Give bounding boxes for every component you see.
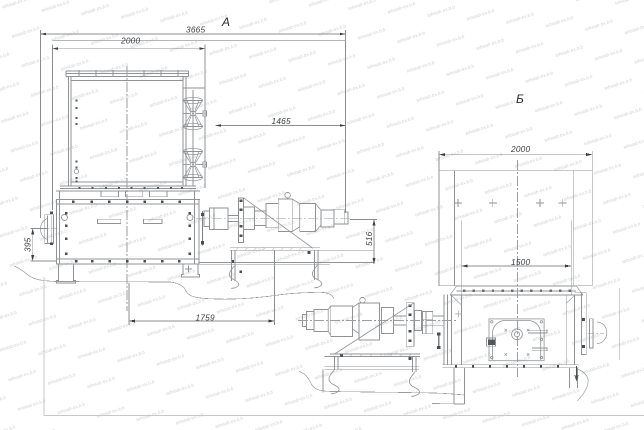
svg-text:3665: 3665: [186, 25, 205, 35]
svg-text:2000: 2000: [510, 144, 530, 154]
svg-text:1465: 1465: [272, 116, 291, 126]
svg-text:А: А: [221, 15, 230, 29]
svg-text:1500: 1500: [511, 257, 530, 267]
svg-text:Б: Б: [516, 92, 524, 106]
svg-text:1759: 1759: [196, 312, 215, 322]
svg-text:2000: 2000: [120, 36, 140, 46]
svg-text:395: 395: [23, 237, 33, 252]
svg-text:516: 516: [364, 231, 374, 246]
